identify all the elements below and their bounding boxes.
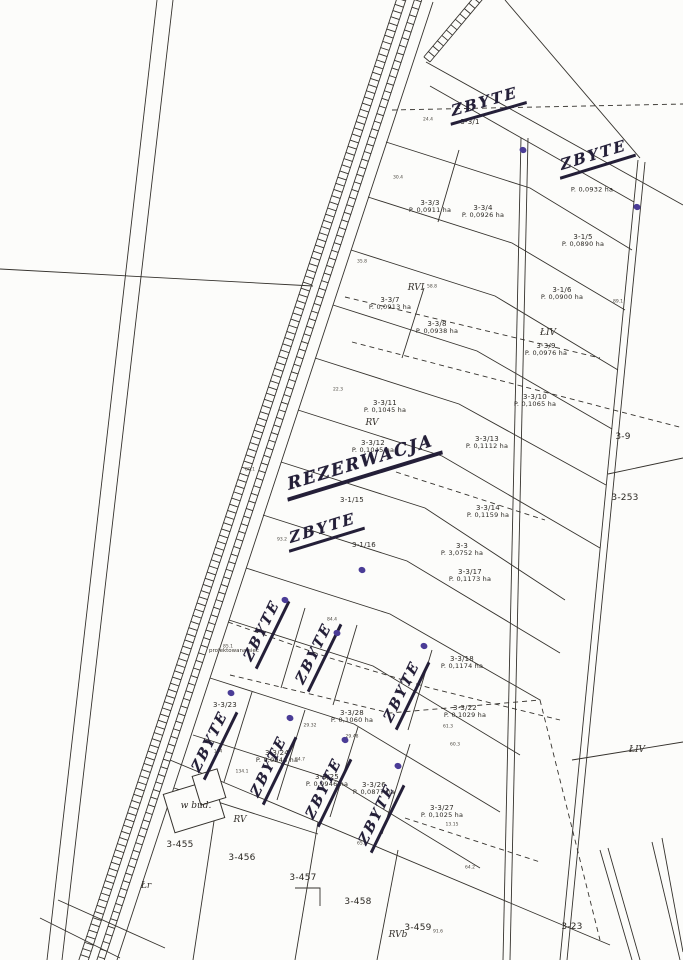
parcel-area: P. 0,0890 ha bbox=[562, 241, 604, 248]
parcel-label: 3-459 bbox=[404, 923, 431, 933]
land-use-label: RV bbox=[234, 815, 247, 825]
parcel-area: P. 0,0976 ha bbox=[525, 350, 567, 357]
parcel-area: P. 0,1045 ha bbox=[364, 407, 406, 414]
survey-point-number: 24.4 bbox=[423, 118, 433, 123]
parcel-number: 3-456 bbox=[228, 853, 255, 863]
parcel-label: 3-3/13P. 0,1112 ha bbox=[466, 435, 508, 451]
survey-point-number: 61.3 bbox=[443, 725, 453, 730]
parcel-area: P. 0,0926 ha bbox=[462, 212, 504, 219]
parcel-label: 3-1/5P. 0,0890 ha bbox=[562, 233, 604, 249]
parcel-label: 3-3/9P. 0,0976 ha bbox=[525, 342, 567, 358]
parcel-area: P. 0,1174 ha bbox=[441, 663, 483, 670]
parcel-area: P. 0,0900 ha bbox=[541, 294, 583, 301]
parcel-label: 3-3/11P. 0,1045 ha bbox=[364, 399, 406, 415]
land-use-label: ŁIV bbox=[540, 328, 556, 338]
survey-point-number: 13.15 bbox=[446, 823, 459, 828]
parcel-area: P. 0,0911 ha bbox=[409, 207, 451, 214]
parcel-label: 3-3/18P. 0,1174 ha bbox=[441, 655, 483, 671]
survey-point-number: 91.6 bbox=[433, 930, 443, 935]
parcel-number: 3-9 bbox=[615, 432, 630, 442]
survey-point-number: 89.1 bbox=[613, 300, 623, 305]
parcel-number: 3-1/16 bbox=[352, 541, 376, 549]
parcel-number: 3-253 bbox=[611, 493, 638, 503]
parcel-label: 3-3/8P. 0,0938 ha bbox=[416, 320, 458, 336]
parcel-area: P. 0,0932 ha bbox=[571, 186, 613, 193]
parcel-number: 3-455 bbox=[166, 840, 193, 850]
parcel-number: 3-458 bbox=[344, 897, 371, 907]
land-use-label: RV bbox=[366, 418, 379, 428]
parcel-area: P. 3,0752 ha bbox=[441, 550, 483, 557]
parcel-area: P. 0,1065 ha bbox=[514, 401, 556, 408]
survey-point-number: 134.1 bbox=[236, 770, 249, 775]
land-use-label: RVI bbox=[408, 283, 425, 293]
parcel-number: 3-1/15 bbox=[340, 496, 364, 504]
parcel-label: 3-1/16 bbox=[352, 541, 376, 549]
parcel-label: 3-3/17P. 0,1173 ha bbox=[449, 568, 491, 584]
parcel-label: 3-3/4P. 0,0926 ha bbox=[462, 204, 504, 220]
parcel-number: 3-23 bbox=[561, 922, 582, 932]
land-use-label: RVb bbox=[389, 930, 408, 940]
parcel-area: P. 0,1173 ha bbox=[449, 576, 491, 583]
parcel-area: P. 0,0938 ha bbox=[416, 328, 458, 335]
parcel-area: P. 0,1029 ha bbox=[444, 712, 486, 719]
parcel-area: P. 0,1159 ha bbox=[467, 512, 509, 519]
survey-point-number: 30.4 bbox=[393, 176, 403, 181]
survey-point-number: 93.2 bbox=[277, 538, 287, 543]
survey-point-number: 84.7 bbox=[295, 758, 305, 763]
parcel-label: P. 0,0932 ha bbox=[571, 186, 613, 193]
survey-point-number: 64.2 bbox=[465, 866, 475, 871]
parcel-label: 3-3/10P. 0,1065 ha bbox=[514, 393, 556, 409]
parcel-label: 3-3/7P. 0,0913 ha bbox=[369, 296, 411, 312]
survey-point-number: 60.3 bbox=[450, 743, 460, 748]
parcel-label: 3-253 bbox=[611, 493, 638, 503]
parcel-area: P. 0,0913 ha bbox=[369, 304, 411, 311]
parcel-label: 3-3/28P. 0,1060 ha bbox=[331, 709, 373, 725]
parcel-label: 3-3P. 3,0752 ha bbox=[441, 542, 483, 558]
parcel-number: 3-459 bbox=[404, 923, 431, 933]
survey-point-number: 29.32 bbox=[304, 724, 317, 729]
cadastral-map: 3-3/1P. 0,0932 ha3-3/3P. 0,0911 ha3-3/4P… bbox=[0, 0, 683, 960]
parcel-area: P. 0,1112 ha bbox=[466, 443, 508, 450]
parcel-label: 3-3/22P. 0,1029 ha bbox=[444, 704, 486, 720]
parcel-label: 3-456 bbox=[228, 853, 255, 863]
parcel-area: P. 0,1025 ha bbox=[421, 812, 463, 819]
survey-point-number: 22.3 bbox=[333, 388, 343, 393]
parcel-label: 3-1/15 bbox=[340, 496, 364, 504]
land-use-label: ŁIV bbox=[629, 745, 645, 755]
parcel-area: P. 0,1060 ha bbox=[331, 717, 373, 724]
parcel-label: 3-9 bbox=[615, 432, 630, 442]
survey-point-number: 35.8 bbox=[357, 260, 367, 265]
survey-point-number: 80.1 bbox=[245, 468, 255, 473]
parcel-label: 3-458 bbox=[344, 897, 371, 907]
parcel-label: 3-455 bbox=[166, 840, 193, 850]
parcel-label: 3-457 bbox=[289, 873, 316, 883]
building-status-label: w bud. bbox=[181, 801, 212, 811]
parcel-label: 3-3/14P. 0,1159 ha bbox=[467, 504, 509, 520]
parcel-number: 3-457 bbox=[289, 873, 316, 883]
parcel-label: 3-23 bbox=[561, 922, 582, 932]
parcel-label: 3-3/3P. 0,0911 ha bbox=[409, 199, 451, 215]
land-use-label: Łr bbox=[141, 881, 151, 891]
parcel-label: 3-1/6P. 0,0900 ha bbox=[541, 286, 583, 302]
parcel-label: 3-3/27P. 0,1025 ha bbox=[421, 804, 463, 820]
survey-point-number: 58.8 bbox=[427, 285, 437, 290]
